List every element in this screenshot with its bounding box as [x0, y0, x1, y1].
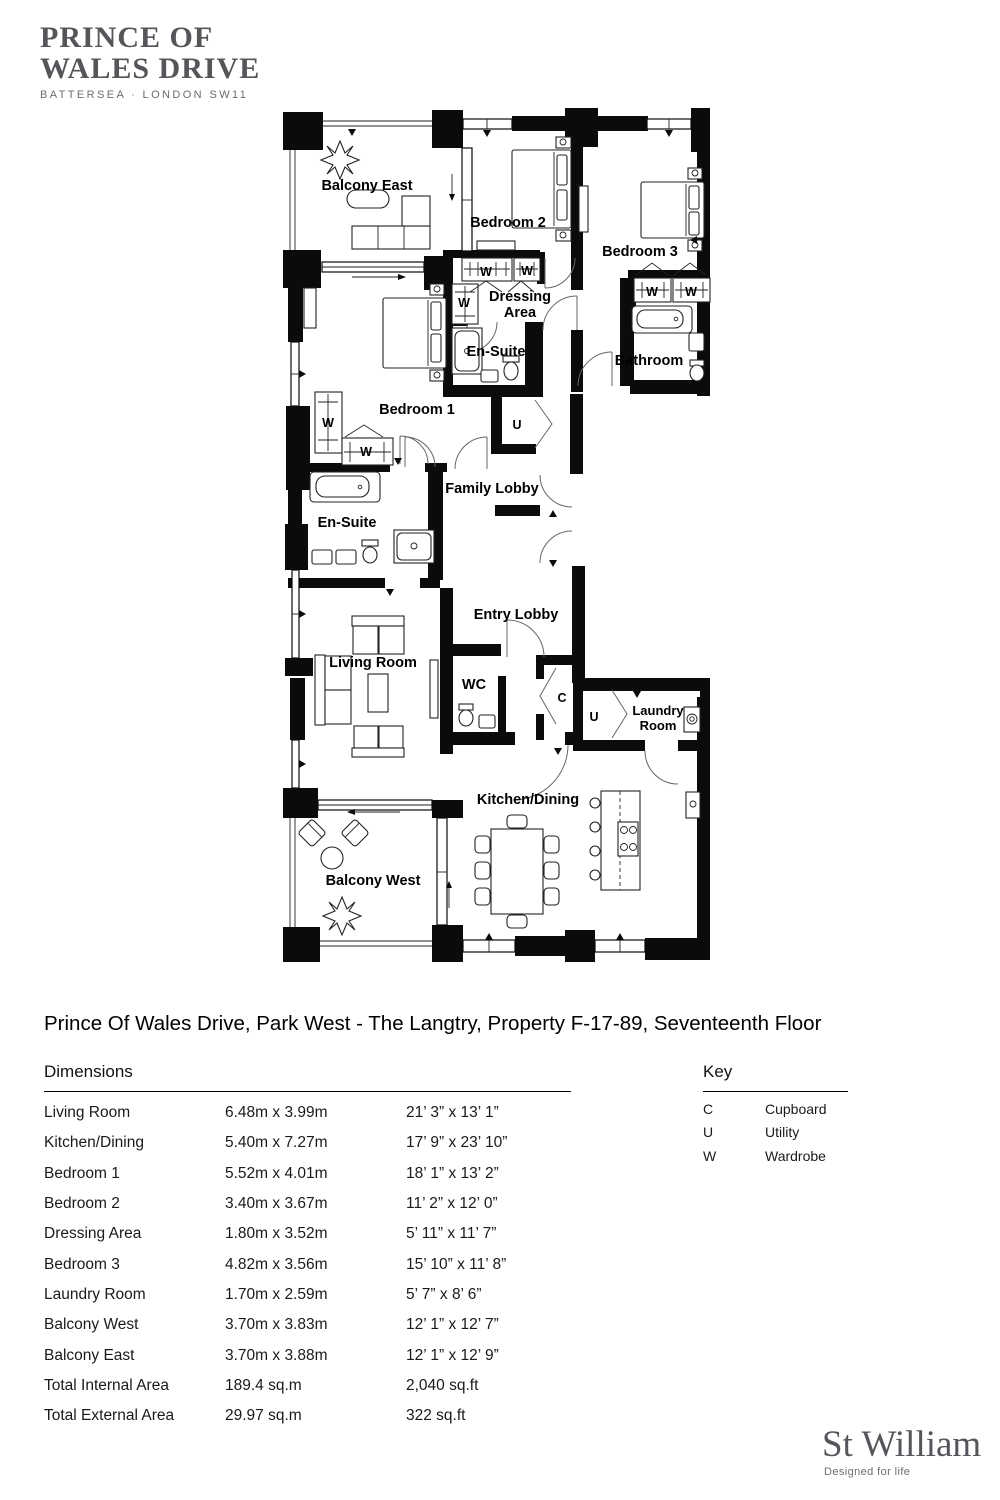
key-label: Wardrobe: [765, 1148, 848, 1164]
balcony-east-furniture-icon: [321, 141, 430, 249]
table-row: Dressing Area 1.80m x 3.52m 5’ 11” x 11’…: [44, 1219, 571, 1249]
label-w-dressing-3: W: [458, 296, 470, 310]
label-laundry-1: Laundry: [632, 703, 684, 718]
metric-size: 1.70m x 2.59m: [225, 1286, 406, 1304]
label-w-dressing-1: W: [480, 265, 492, 279]
wc-fixtures-icon: [459, 704, 495, 728]
bedroom-1-bed-icon: [304, 284, 446, 381]
imperial-size: 5’ 11” x 11’ 7”: [406, 1225, 571, 1243]
metric-size: 5.40m x 7.27m: [225, 1134, 406, 1152]
label-dressing-area-2: Area: [504, 305, 537, 321]
label-wc: WC: [462, 677, 487, 693]
key-header: Key: [703, 1062, 848, 1092]
room-name: Living Room: [44, 1104, 225, 1122]
key-row: W Wardrobe: [703, 1144, 848, 1168]
room-name: Bedroom 2: [44, 1195, 225, 1213]
table-row: Balcony West 3.70m x 3.83m 12’ 1” x 12’ …: [44, 1310, 571, 1340]
label-family-lobby: Family Lobby: [445, 481, 538, 497]
label-c-cupboard: C: [557, 691, 566, 705]
dimensions-table: Dimensions Living Room 6.48m x 3.99m 21’…: [44, 1062, 571, 1431]
dimensions-rows: Living Room 6.48m x 3.99m 21’ 3” x 13’ 1…: [44, 1098, 571, 1431]
label-entry-lobby: Entry Lobby: [474, 607, 559, 623]
label-en-suite-top: En-Suite: [467, 344, 526, 360]
key-label: Utility: [765, 1124, 848, 1140]
label-u-laundry: U: [589, 710, 598, 724]
logo-line-1: PRINCE OF: [40, 22, 260, 53]
laundry-washer-icon: [684, 707, 700, 732]
imperial-size: 17’ 9” x 23’ 10”: [406, 1134, 571, 1152]
label-w-dressing-2: W: [521, 264, 533, 278]
developer-logo: St William Designed for life: [822, 1426, 981, 1478]
key-code: U: [703, 1124, 765, 1140]
label-w-bedroom3-2: W: [685, 285, 697, 299]
imperial-size: 2,040 sq.ft: [406, 1377, 571, 1395]
table-row: Bedroom 3 4.82m x 3.56m 15’ 10” x 11’ 8”: [44, 1249, 571, 1279]
metric-size: 189.4 sq.m: [225, 1377, 406, 1395]
key-rows: C Cupboard U Utility W Wardrobe: [703, 1097, 848, 1168]
bedroom-3-bed-icon: [579, 168, 704, 251]
imperial-size: 18’ 1” x 13’ 2”: [406, 1165, 571, 1183]
room-name: Total Internal Area: [44, 1377, 225, 1395]
table-row: Laundry Room 1.70m x 2.59m 5’ 7” x 8’ 6”: [44, 1280, 571, 1310]
room-name: Balcony West: [44, 1316, 225, 1334]
key-label: Cupboard: [765, 1101, 848, 1117]
key-code: C: [703, 1101, 765, 1117]
table-row: Bedroom 1 5.52m x 4.01m 18’ 1” x 13’ 2”: [44, 1159, 571, 1189]
table-row: Kitchen/Dining 5.40m x 7.27m 17’ 9” x 23…: [44, 1128, 571, 1158]
label-bedroom-2: Bedroom 2: [470, 215, 546, 231]
table-row: Total Internal Area 189.4 sq.m 2,040 sq.…: [44, 1371, 571, 1401]
imperial-size: 11’ 2” x 12’ 0”: [406, 1195, 571, 1213]
imperial-size: 21’ 3” x 13’ 1”: [406, 1104, 571, 1122]
table-row: Balcony East 3.70m x 3.88m 12’ 1” x 12’ …: [44, 1340, 571, 1370]
metric-size: 4.82m x 3.56m: [225, 1256, 406, 1274]
metric-size: 6.48m x 3.99m: [225, 1104, 406, 1122]
floor-plan-svg: Balcony East Bedroom 2 Bedroom 3 Dressin…: [283, 107, 713, 982]
floor-plan: Balcony East Bedroom 2 Bedroom 3 Dressin…: [283, 107, 713, 982]
label-bedroom-1: Bedroom 1: [379, 402, 455, 418]
metric-size: 1.80m x 3.52m: [225, 1225, 406, 1243]
imperial-size: 322 sq.ft: [406, 1407, 571, 1425]
imperial-size: 12’ 1” x 12’ 7”: [406, 1316, 571, 1334]
imperial-size: 12’ 1” x 12’ 9”: [406, 1347, 571, 1365]
label-living-room: Living Room: [329, 655, 417, 671]
logo-line-2: WALES DRIVE: [40, 53, 260, 84]
metric-size: 3.70m x 3.88m: [225, 1347, 406, 1365]
room-name: Kitchen/Dining: [44, 1134, 225, 1152]
metric-size: 3.40m x 3.67m: [225, 1195, 406, 1213]
label-laundry-2: Room: [640, 718, 677, 733]
metric-size: 5.52m x 4.01m: [225, 1165, 406, 1183]
metric-size: 29.97 sq.m: [225, 1407, 406, 1425]
developer-name: St William: [822, 1426, 981, 1465]
label-bedroom-3: Bedroom 3: [602, 244, 678, 260]
imperial-size: 15’ 10” x 11’ 8”: [406, 1256, 571, 1274]
page-title: Prince Of Wales Drive, Park West - The L…: [44, 1012, 821, 1036]
table-row: Total External Area 29.97 sq.m 322 sq.ft: [44, 1401, 571, 1431]
dimensions-header: Dimensions: [44, 1062, 571, 1092]
metric-size: 3.70m x 3.83m: [225, 1316, 406, 1334]
room-name: Total External Area: [44, 1407, 225, 1425]
developer-tagline: Designed for life: [822, 1466, 981, 1478]
development-logo: PRINCE OF WALES DRIVE BATTERSEA · LONDON…: [40, 22, 260, 101]
table-row: Living Room 6.48m x 3.99m 21’ 3” x 13’ 1…: [44, 1098, 571, 1128]
label-w-bedroom3-1: W: [646, 285, 658, 299]
label-bathroom: Bathroom: [615, 353, 683, 369]
room-name: Laundry Room: [44, 1286, 225, 1304]
room-name: Dressing Area: [44, 1225, 225, 1243]
imperial-size: 5’ 7” x 8’ 6”: [406, 1286, 571, 1304]
key-table: Key C Cupboard U Utility W Wardrobe: [703, 1062, 848, 1168]
logo-subtitle: BATTERSEA · LONDON SW11: [40, 89, 260, 101]
label-balcony-west: Balcony West: [326, 873, 421, 889]
key-row: U Utility: [703, 1121, 848, 1145]
label-u-cupboard: U: [512, 418, 521, 432]
room-name: Bedroom 1: [44, 1165, 225, 1183]
table-row: Bedroom 2 3.40m x 3.67m 11’ 2” x 12’ 0”: [44, 1189, 571, 1219]
label-en-suite-left: En-Suite: [318, 515, 377, 531]
label-dressing-area-1: Dressing: [489, 289, 551, 305]
label-w-bedroom1-1: W: [322, 416, 334, 430]
key-row: C Cupboard: [703, 1097, 848, 1121]
label-balcony-east: Balcony East: [321, 178, 412, 194]
room-name: Bedroom 3: [44, 1256, 225, 1274]
living-room-furniture-icon: [315, 616, 438, 757]
key-code: W: [703, 1148, 765, 1164]
bathroom-fixtures-icon: [632, 306, 704, 381]
label-w-bedroom1-2: W: [360, 445, 372, 459]
bedroom-2-bed-icon: [477, 137, 571, 250]
room-name: Balcony East: [44, 1347, 225, 1365]
label-kitchen-dining: Kitchen/Dining: [477, 792, 579, 808]
kitchen-dining-furniture-icon: [475, 791, 700, 928]
floorplan-page: PRINCE OF WALES DRIVE BATTERSEA · LONDON…: [0, 0, 1000, 1500]
